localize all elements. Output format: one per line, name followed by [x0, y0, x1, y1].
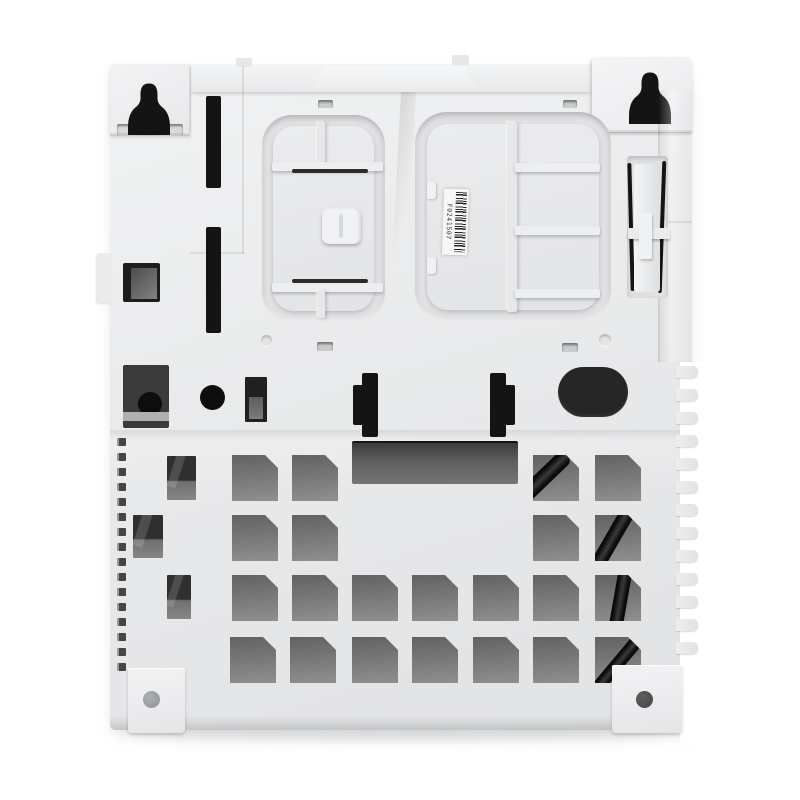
edge-vent — [117, 603, 126, 611]
vent-hole — [352, 637, 398, 683]
edge-fin — [676, 458, 698, 470]
edge-fin — [676, 504, 698, 516]
edge-vent — [117, 588, 126, 596]
vent-hole — [292, 455, 338, 501]
vent-hole — [533, 637, 579, 683]
edge-vent — [117, 618, 126, 626]
vent-hole — [595, 515, 641, 561]
foot-left-screw-hole — [143, 691, 160, 708]
edge-fin — [676, 481, 698, 493]
edge-fin — [676, 435, 698, 447]
edge-vent — [117, 528, 126, 536]
vent-hole — [232, 575, 278, 621]
edge-vent — [117, 648, 126, 656]
vent-hole — [533, 455, 579, 501]
edge-vent — [117, 483, 126, 491]
edge-fin — [676, 389, 698, 401]
vent-hole — [352, 575, 398, 621]
vent-hole — [292, 515, 338, 561]
edge-vent — [117, 543, 126, 551]
edge-fin — [676, 366, 698, 378]
vent-hole — [290, 637, 336, 683]
vent-hole — [232, 515, 278, 561]
vent-hole — [412, 575, 458, 621]
edge-fin — [676, 619, 698, 631]
edge-vent — [117, 573, 126, 581]
cable-wire — [606, 575, 633, 621]
slot-hole — [167, 575, 191, 619]
foot-right-screw-hole — [636, 691, 653, 708]
edge-vent — [117, 558, 126, 566]
foot-bottom-left — [128, 668, 185, 733]
edge-vent — [117, 438, 126, 446]
vent-hole — [595, 455, 641, 501]
vent-hole — [232, 455, 278, 501]
vent-hole — [473, 637, 519, 683]
edge-fin — [676, 596, 698, 608]
edge-fin — [676, 412, 698, 424]
edge-fin — [676, 642, 698, 654]
edge-fin — [676, 550, 698, 562]
vent-hole — [473, 575, 519, 621]
foot-bottom-right — [612, 665, 682, 733]
cable-wire — [533, 455, 573, 501]
slot-hole — [167, 456, 196, 500]
edge-fin — [676, 527, 698, 539]
edge-fin — [676, 573, 698, 585]
vent-hole — [292, 575, 338, 621]
vent-hole — [412, 637, 458, 683]
product-photo: F0241507 — [0, 0, 800, 800]
edge-vent — [117, 498, 126, 506]
edge-vent — [117, 453, 126, 461]
vent-hole — [533, 575, 579, 621]
cable-wire — [595, 515, 636, 561]
edge-vent — [117, 663, 126, 671]
edge-vent — [117, 633, 126, 641]
edge-vent — [117, 468, 126, 476]
slot-hole — [133, 515, 163, 558]
vent-hole — [230, 637, 276, 683]
vent-hole — [595, 575, 641, 621]
vent-hole — [533, 515, 579, 561]
edge-vent — [117, 513, 126, 521]
